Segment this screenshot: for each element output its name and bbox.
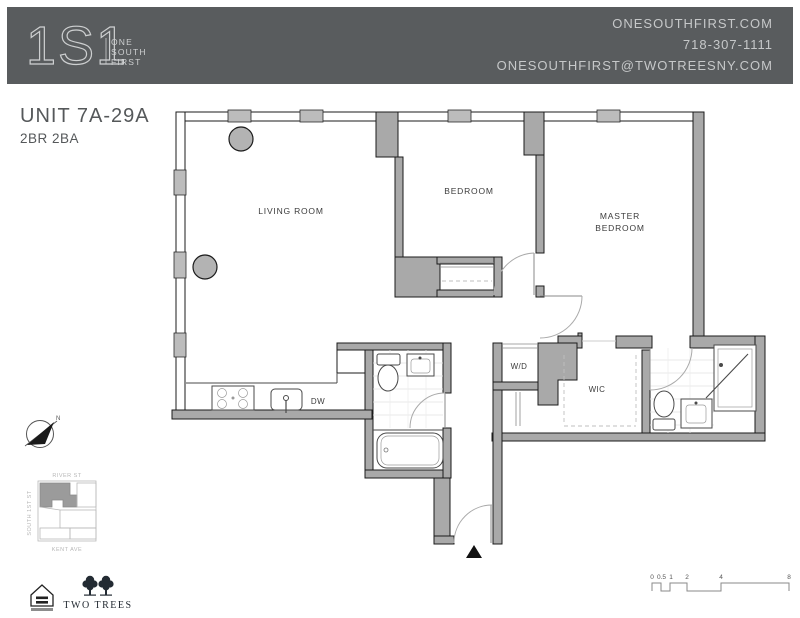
dishwasher-label: DW xyxy=(311,397,325,406)
logo-word-first: FIRST xyxy=(111,57,142,67)
floorplan-canvas: 1S1 ONE SOUTH FIRST ONESOUTHFIRST.COM 71… xyxy=(0,0,800,618)
columns xyxy=(193,127,253,279)
scale-tick-label: 2 xyxy=(685,574,689,581)
unit-title-block: UNIT 7A-29A 2BR 2BA xyxy=(20,105,150,146)
wall-segment xyxy=(616,336,652,348)
wall-segment xyxy=(337,343,451,350)
scale-bar: 0 0.5 1 2 4 8 xyxy=(650,574,791,591)
scale-tick-label: 8 xyxy=(787,574,791,581)
window xyxy=(448,110,471,122)
bathroom-1 xyxy=(373,350,445,468)
shower-icon xyxy=(706,345,756,411)
wall-segment xyxy=(538,343,577,405)
site-map: RIVER ST KENT AVE SOUTH 1ST ST xyxy=(27,473,96,553)
compass: N xyxy=(25,416,60,448)
window xyxy=(174,333,186,357)
kitchen-sink-icon xyxy=(271,389,302,413)
footer-logos: TWO TREES xyxy=(31,576,133,611)
scale-tick-label: 0.5 xyxy=(657,574,666,581)
wall-segment xyxy=(493,343,502,544)
duct-column xyxy=(337,350,365,373)
window xyxy=(228,110,251,122)
wall-segment xyxy=(395,257,440,297)
south-wall xyxy=(492,433,765,441)
stove-icon xyxy=(212,386,254,410)
contact-email: ONESOUTHFIRST@TWOTREESNY.COM xyxy=(497,58,773,73)
wall-segment xyxy=(642,350,650,433)
floorplan: DW xyxy=(172,110,765,558)
kitchen: DW xyxy=(186,373,337,413)
wall-segment xyxy=(395,157,403,257)
street-label-south-1st: SOUTH 1ST ST xyxy=(27,490,33,535)
two-trees-label: TWO TREES xyxy=(63,600,132,611)
highlighted-building xyxy=(40,483,77,507)
window xyxy=(300,110,323,122)
wall-segment xyxy=(437,290,502,297)
entry xyxy=(454,505,492,558)
window xyxy=(174,170,186,195)
wall-segment xyxy=(434,478,450,540)
walk-in-closet-label: WIC xyxy=(589,385,606,394)
bathtub-icon xyxy=(377,433,443,468)
logo-word-one: ONE xyxy=(111,37,133,47)
wall-segment xyxy=(376,112,398,157)
header: 1S1 ONE SOUTH FIRST ONESOUTHFIRST.COM 71… xyxy=(7,7,793,84)
bedroom-closet xyxy=(440,263,494,281)
floorplan-sheet: 1S1 ONE SOUTH FIRST ONESOUTHFIRST.COM 71… xyxy=(0,0,800,618)
round-column xyxy=(229,127,253,151)
scale-tick-label: 1 xyxy=(669,574,673,581)
street-label-kent: KENT AVE xyxy=(52,547,82,553)
scale-tick-label: 4 xyxy=(719,574,723,581)
contact-phone: 718-307-1111 xyxy=(683,37,773,52)
master-bath-door-arc xyxy=(650,348,692,390)
wall-segment xyxy=(443,343,451,393)
wall-segment xyxy=(443,428,451,478)
bedroom-label: BEDROOM xyxy=(444,186,494,196)
bath-sink-icon xyxy=(407,354,434,376)
window xyxy=(597,110,620,122)
round-column xyxy=(193,255,217,279)
living-room-label: LIVING ROOM xyxy=(258,206,323,216)
master-door-arc xyxy=(540,296,582,338)
wall-segment xyxy=(524,112,544,155)
kitchen-wall xyxy=(172,410,372,419)
wall-segment xyxy=(536,286,544,297)
room-labels: LIVING ROOM BEDROOM MASTER BEDROOM xyxy=(258,186,645,233)
toilet-icon xyxy=(653,391,675,430)
north-wall xyxy=(178,112,704,121)
entry-marker-icon xyxy=(466,545,482,558)
bath1-door-arc xyxy=(410,393,445,428)
wall-segment xyxy=(365,470,451,478)
entry-door-arc xyxy=(454,505,492,543)
window xyxy=(174,252,186,278)
wall-segment xyxy=(493,382,538,390)
master-bedroom-label-line1: MASTER xyxy=(600,211,640,221)
washer-dryer-label: W/D xyxy=(511,362,528,371)
equal-housing-logo xyxy=(31,585,53,611)
logo-word-south: SOUTH xyxy=(111,47,147,57)
wall-segment xyxy=(434,536,454,544)
master-bathroom xyxy=(650,345,756,433)
street-label-river: RIVER ST xyxy=(52,473,82,479)
unit-subtitle: 2BR 2BA xyxy=(20,131,79,146)
toilet-icon xyxy=(377,354,400,391)
scale-bar-line xyxy=(652,583,789,591)
unit-title: UNIT 7A-29A xyxy=(20,105,150,127)
scale-tick-label: 0 xyxy=(650,574,654,581)
two-trees-logo-icon xyxy=(82,576,113,596)
east-wall xyxy=(693,112,704,336)
wall-segment xyxy=(536,155,544,253)
contact-website: ONESOUTHFIRST.COM xyxy=(612,16,773,31)
vanity-sink-icon xyxy=(681,399,712,428)
north-label: N xyxy=(56,416,60,422)
master-bedroom-label-line2: BEDROOM xyxy=(595,223,645,233)
interior-walls xyxy=(172,112,765,544)
